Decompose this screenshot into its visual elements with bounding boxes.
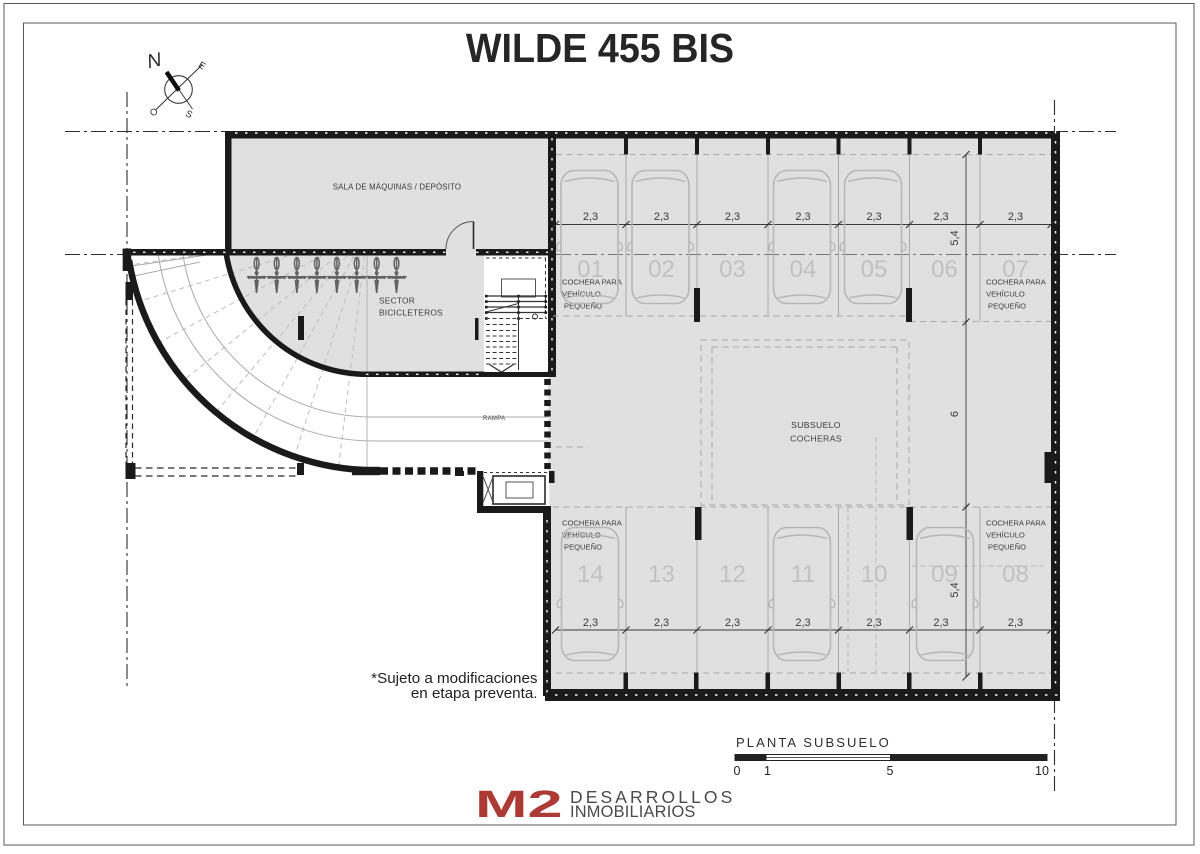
svg-text:BICICLETEROS: BICICLETEROS [379,308,443,318]
svg-text:COCHERA PARA: COCHERA PARA [562,519,623,528]
svg-text:2,3: 2,3 [1008,211,1023,223]
svg-text:SALA DE MÁQUINAS / DEPÓSITO: SALA DE MÁQUINAS / DEPÓSITO [333,183,461,192]
svg-text:SUBSUELO: SUBSUELO [791,420,841,430]
svg-text:2,3: 2,3 [933,211,948,223]
svg-text:en etapa preventa.: en etapa preventa. [411,685,538,702]
svg-text:02: 02 [648,256,675,283]
svg-text:09: 09 [931,561,958,588]
svg-text:2,3: 2,3 [725,617,740,629]
svg-text:14: 14 [577,561,604,588]
svg-text:VEHÍCULO: VEHÍCULO [986,290,1025,299]
svg-text:06: 06 [931,256,958,283]
svg-text:2,3: 2,3 [725,211,740,223]
svg-text:2,3: 2,3 [866,211,881,223]
svg-text:2,3: 2,3 [583,617,598,629]
svg-text:2,3: 2,3 [933,617,948,629]
svg-text:5,4: 5,4 [949,230,961,245]
svg-text:VEHÍCULO: VEHÍCULO [986,531,1025,540]
svg-text:INMOBILIARIOS: INMOBILIARIOS [570,803,696,821]
svg-text:RAMPA: RAMPA [483,416,505,422]
svg-text:12: 12 [719,561,746,588]
svg-text:03: 03 [719,256,746,283]
svg-text:COCHERA PARA: COCHERA PARA [986,278,1047,287]
svg-text:08: 08 [1002,561,1029,588]
svg-text:SECTOR: SECTOR [379,296,415,306]
svg-text:13: 13 [648,561,675,588]
svg-text:COCHERA PARA: COCHERA PARA [562,278,623,287]
svg-text:2,3: 2,3 [795,617,810,629]
svg-text:2,3: 2,3 [1008,617,1023,629]
svg-text:2,3: 2,3 [583,211,598,223]
svg-text:2,3: 2,3 [654,211,669,223]
svg-text:0: 0 [734,764,741,778]
svg-text:6: 6 [949,411,961,417]
svg-text:05: 05 [861,256,888,283]
svg-text:PLANTA SUBSUELO: PLANTA SUBSUELO [736,735,891,750]
svg-text:PEQUEÑO: PEQUEÑO [564,543,602,552]
svg-text:2,3: 2,3 [795,211,810,223]
svg-text:WILDE 455 BIS: WILDE 455 BIS [466,26,734,72]
svg-text:10: 10 [861,561,888,588]
svg-text:COCHERA PARA: COCHERA PARA [986,519,1047,528]
svg-text:10: 10 [1035,764,1049,778]
svg-text:PEQUEÑO: PEQUEÑO [988,302,1026,311]
svg-text:5: 5 [887,764,894,778]
svg-text:1: 1 [764,764,771,778]
svg-text:COCHERAS: COCHERAS [790,434,842,444]
svg-text:M2: M2 [475,783,563,825]
svg-text:PEQUEÑO: PEQUEÑO [988,543,1026,552]
svg-text:11: 11 [791,561,816,588]
svg-text:04: 04 [790,256,817,283]
svg-text:2,3: 2,3 [654,617,669,629]
svg-text:2,3: 2,3 [866,617,881,629]
